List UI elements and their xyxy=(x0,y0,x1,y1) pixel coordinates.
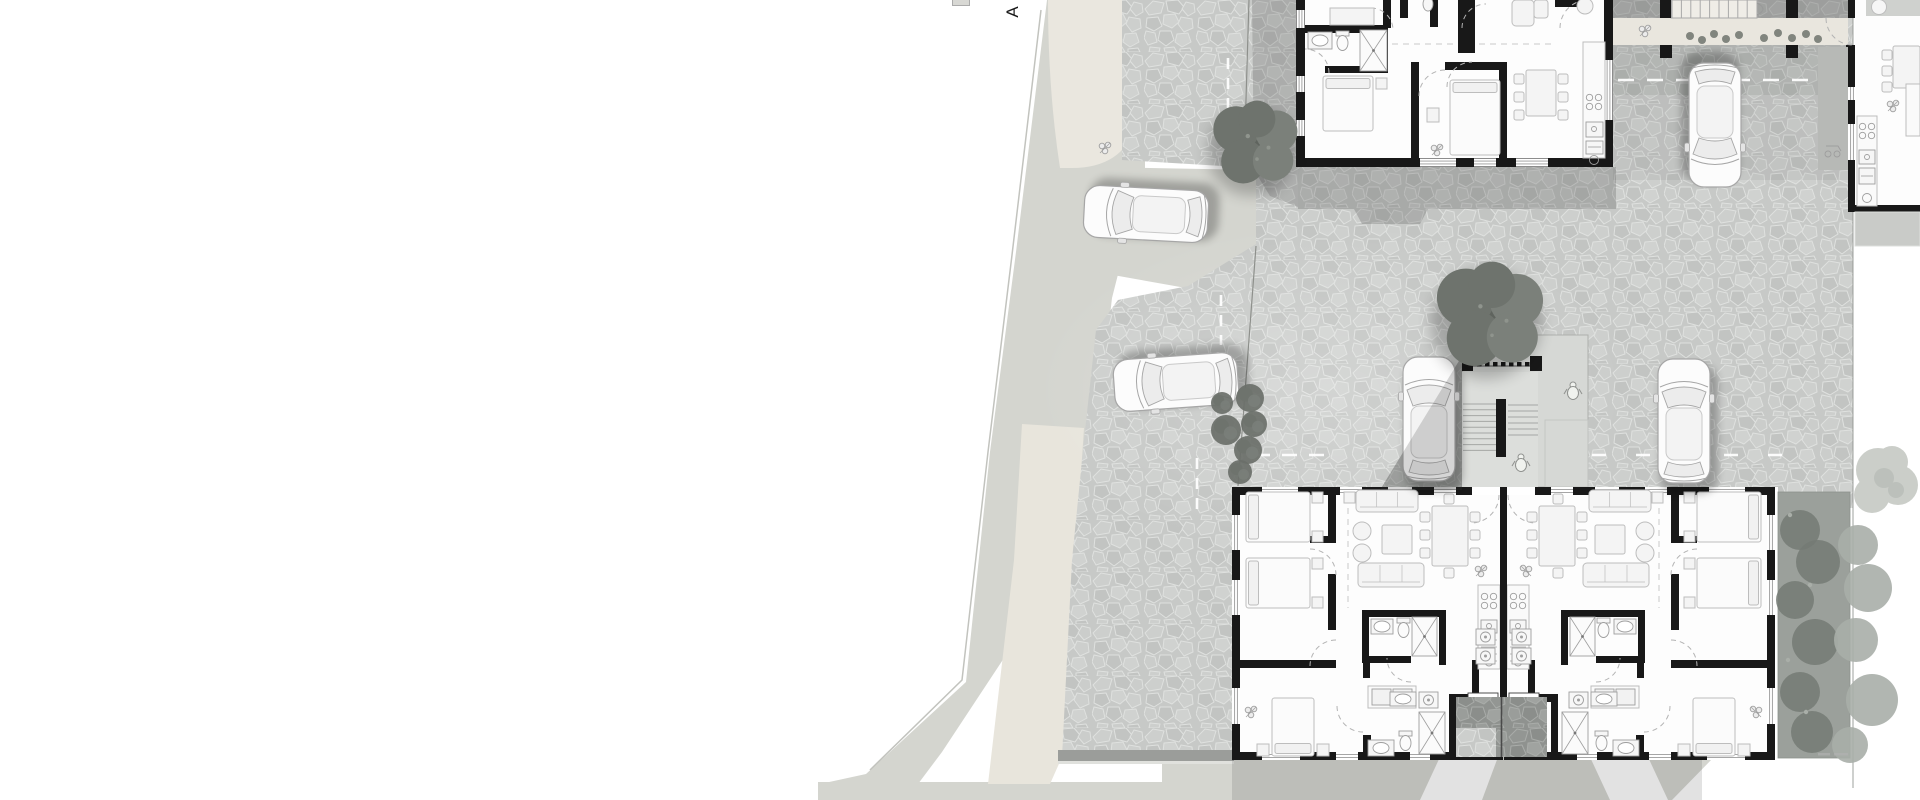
car-parked-east xyxy=(1654,359,1719,494)
terrace xyxy=(1855,212,1920,246)
section-marker-label: A xyxy=(1002,1,1024,23)
south-building xyxy=(1232,487,1775,760)
car-parked-north xyxy=(1681,52,1746,187)
courtyard-tree xyxy=(1431,262,1543,379)
car-street xyxy=(1082,177,1220,248)
light-tree xyxy=(1854,446,1918,513)
porch xyxy=(1818,47,1848,170)
site-plan: A xyxy=(0,0,1920,800)
section-marker-tick xyxy=(952,0,970,6)
north-building xyxy=(1296,0,1613,167)
site-plan-canvas xyxy=(0,0,1920,800)
patio xyxy=(1866,0,1920,16)
entry-vestibule xyxy=(1456,697,1547,757)
garden-hedge xyxy=(1776,492,1898,763)
